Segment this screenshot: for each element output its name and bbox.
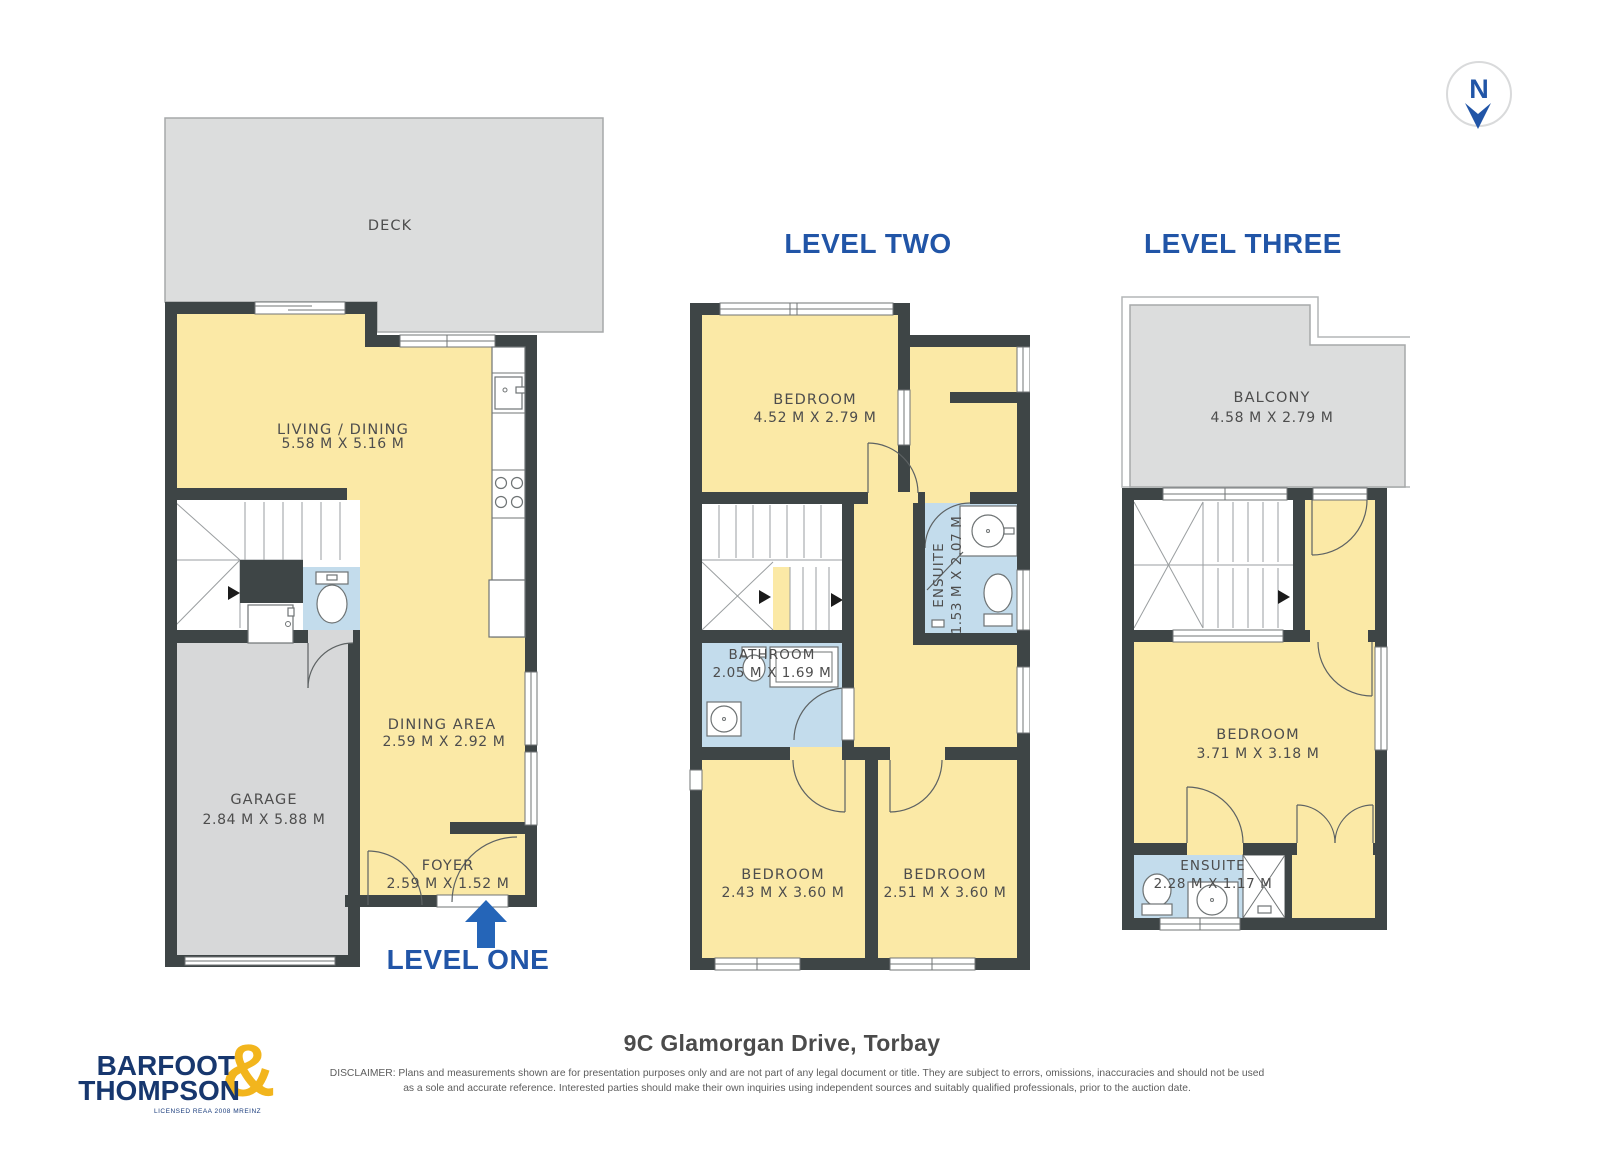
bedroom2-dims: 2.43 M X 3.60 M bbox=[722, 885, 845, 901]
foyer-partition-wall bbox=[450, 822, 537, 834]
level-two-plan: BEDROOM 4.52 M X 2.79 M BATHROOM 2.05 M … bbox=[685, 290, 1030, 985]
garage-right-wall bbox=[348, 630, 360, 967]
barfoot-thompson-logo: & BARFOOT THOMPSON LICENSED REAA 2008 MR… bbox=[62, 1042, 282, 1120]
stairs bbox=[702, 503, 843, 633]
toilet-icon bbox=[316, 572, 348, 623]
bathroom-dims: 2.05 M X 1.69 M bbox=[713, 665, 832, 681]
basin-icon bbox=[972, 515, 1004, 547]
property-address: 9C Glamorgan Drive, Torbay bbox=[382, 1030, 1182, 1057]
level-two-title: LEVEL TWO bbox=[758, 228, 978, 260]
ensuite-label: ENSUITE bbox=[931, 542, 947, 608]
logo-word-thompson: THOMPSON bbox=[78, 1075, 240, 1107]
fridge-icon bbox=[489, 580, 525, 637]
wall-infill bbox=[240, 560, 303, 603]
level-three-plan: BALCONY 4.58 M X 2.79 M BEDROOM 3.71 M X… bbox=[1100, 290, 1410, 940]
ensuite-dims: 2.28 M X 1.17 M bbox=[1154, 876, 1273, 892]
level-one-title: LEVEL ONE bbox=[358, 944, 578, 976]
compass-arrow-icon bbox=[1463, 103, 1493, 131]
balcony-label: BALCONY bbox=[1234, 390, 1311, 406]
bedroom3-dims: 2.51 M X 3.60 M bbox=[884, 885, 1007, 901]
level-one-plan: DECK LIVING / DINING 5.58 M X 5.16 M GAR… bbox=[160, 110, 620, 980]
foyer-label: FOYER bbox=[422, 858, 475, 874]
disclaimer-line-2: as a sole and accurate reference. Intere… bbox=[297, 1081, 1297, 1096]
bedroom1-dims: 4.52 M X 2.79 M bbox=[754, 410, 877, 426]
bathroom-label: BATHROOM bbox=[729, 647, 816, 663]
bedroom2-label: BEDROOM bbox=[741, 867, 824, 883]
stairs bbox=[1134, 500, 1293, 630]
floor-plan-page: N bbox=[0, 0, 1600, 1167]
shower-fitting-icon bbox=[932, 620, 944, 627]
living-dining-dims: 5.58 M X 5.16 M bbox=[282, 436, 405, 452]
garage-dims: 2.84 M X 5.88 M bbox=[203, 812, 326, 828]
level-three-title: LEVEL THREE bbox=[1133, 228, 1353, 260]
entry-door-gap bbox=[437, 895, 508, 907]
balcony-dims: 4.58 M X 2.79 M bbox=[1211, 410, 1334, 426]
deck-label: DECK bbox=[368, 218, 412, 234]
ensuite-label: ENSUITE bbox=[1180, 858, 1246, 874]
disclaimer-line-1: DISCLAIMER: Plans and measurements shown… bbox=[297, 1066, 1297, 1081]
garage-label: GARAGE bbox=[230, 792, 297, 808]
shower-fitting-icon bbox=[1258, 906, 1271, 913]
bedroom-label: BEDROOM bbox=[1216, 727, 1299, 743]
dining-area-label: DINING AREA bbox=[388, 717, 496, 733]
bedroom-dims: 3.71 M X 3.18 M bbox=[1197, 746, 1320, 762]
garage-door-gap bbox=[308, 630, 353, 643]
bedroom3-label: BEDROOM bbox=[903, 867, 986, 883]
ensuite-dims: 1.53 M X 2.07 M bbox=[949, 516, 965, 635]
toilet-icon bbox=[984, 574, 1012, 612]
kitchen-counter bbox=[489, 347, 525, 637]
utility-cabinet-icon bbox=[248, 605, 294, 643]
foyer-dims: 2.59 M X 1.52 M bbox=[387, 876, 510, 892]
stair-landing bbox=[773, 567, 790, 633]
disclaimer: DISCLAIMER: Plans and measurements shown… bbox=[297, 1066, 1297, 1097]
dining-area-dims: 2.59 M X 2.92 M bbox=[383, 734, 506, 750]
bedroom1-label: BEDROOM bbox=[773, 392, 856, 408]
logo-tagline: LICENSED REAA 2008 MREINZ bbox=[154, 1108, 261, 1115]
